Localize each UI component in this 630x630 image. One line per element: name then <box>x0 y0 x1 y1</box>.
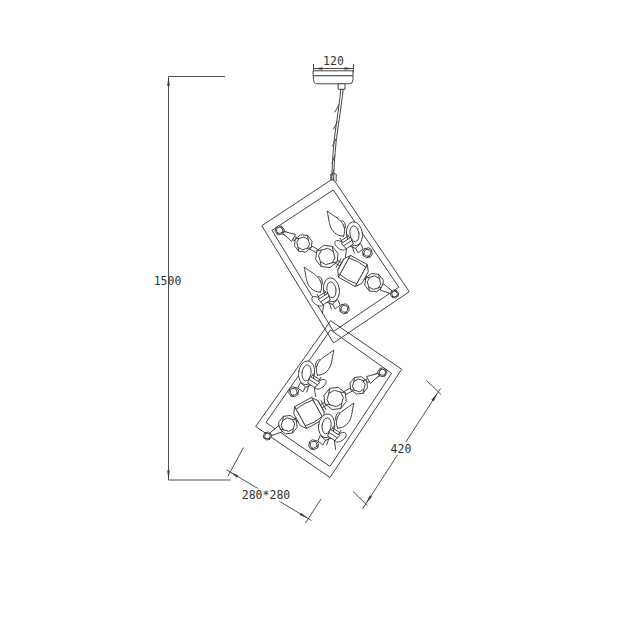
arrowhead-left <box>314 67 323 70</box>
suspension-cable <box>331 89 343 181</box>
arrowhead-upper <box>431 393 437 401</box>
dimension-frame-footprint <box>227 448 322 524</box>
arrowhead-down <box>167 471 170 481</box>
technical-drawing-page: 120 1500 420 280*280 <box>0 0 630 630</box>
arrowhead-lower <box>366 495 372 503</box>
ceiling-canopy <box>314 71 354 90</box>
frame-footprint-label: 280*280 <box>242 488 291 502</box>
arrowhead-upperleft <box>230 472 238 478</box>
pendant-lamp-dimension-drawing: 120 1500 420 280*280 <box>0 0 630 630</box>
drop-height-label: 1500 <box>154 274 182 288</box>
arrowhead-lowerright <box>300 513 308 519</box>
canopy-width-label: 120 <box>323 54 344 68</box>
arrowhead-right <box>345 67 354 70</box>
arrowhead-up <box>167 77 170 87</box>
frame-diagonal-label: 420 <box>391 442 412 456</box>
